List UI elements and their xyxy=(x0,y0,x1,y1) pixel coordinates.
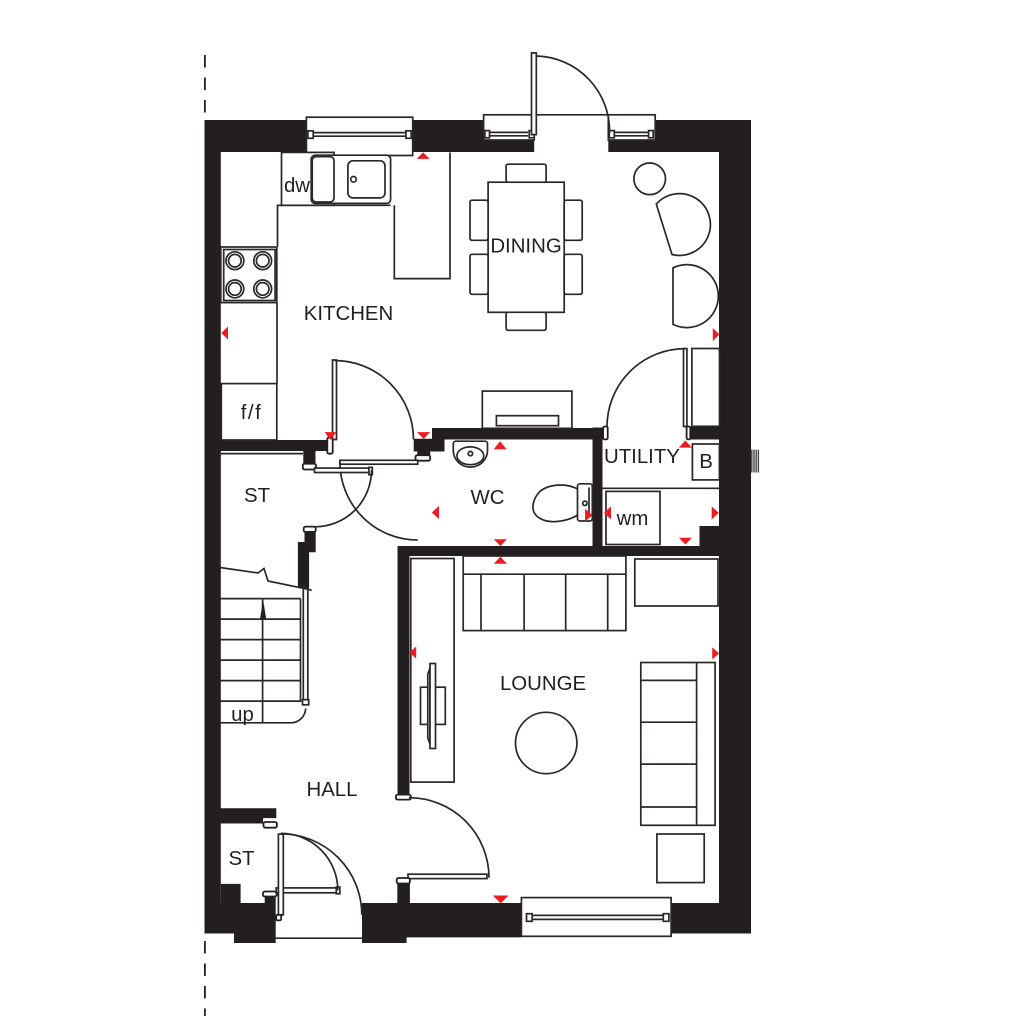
svg-text:dw: dw xyxy=(284,175,310,197)
svg-text:DINING: DINING xyxy=(490,236,561,258)
svg-text:B: B xyxy=(699,451,713,473)
svg-text:HALL: HALL xyxy=(306,779,357,801)
svg-text:ST: ST xyxy=(244,485,270,507)
svg-text:f/f: f/f xyxy=(241,402,263,424)
svg-text:up: up xyxy=(231,704,254,726)
svg-text:ST: ST xyxy=(228,848,254,870)
svg-text:LOUNGE: LOUNGE xyxy=(500,673,586,695)
svg-text:wm: wm xyxy=(616,508,649,530)
svg-text:KITCHEN: KITCHEN xyxy=(304,303,394,325)
svg-text:WC: WC xyxy=(471,487,505,509)
svg-text:UTILITY: UTILITY xyxy=(604,446,680,468)
